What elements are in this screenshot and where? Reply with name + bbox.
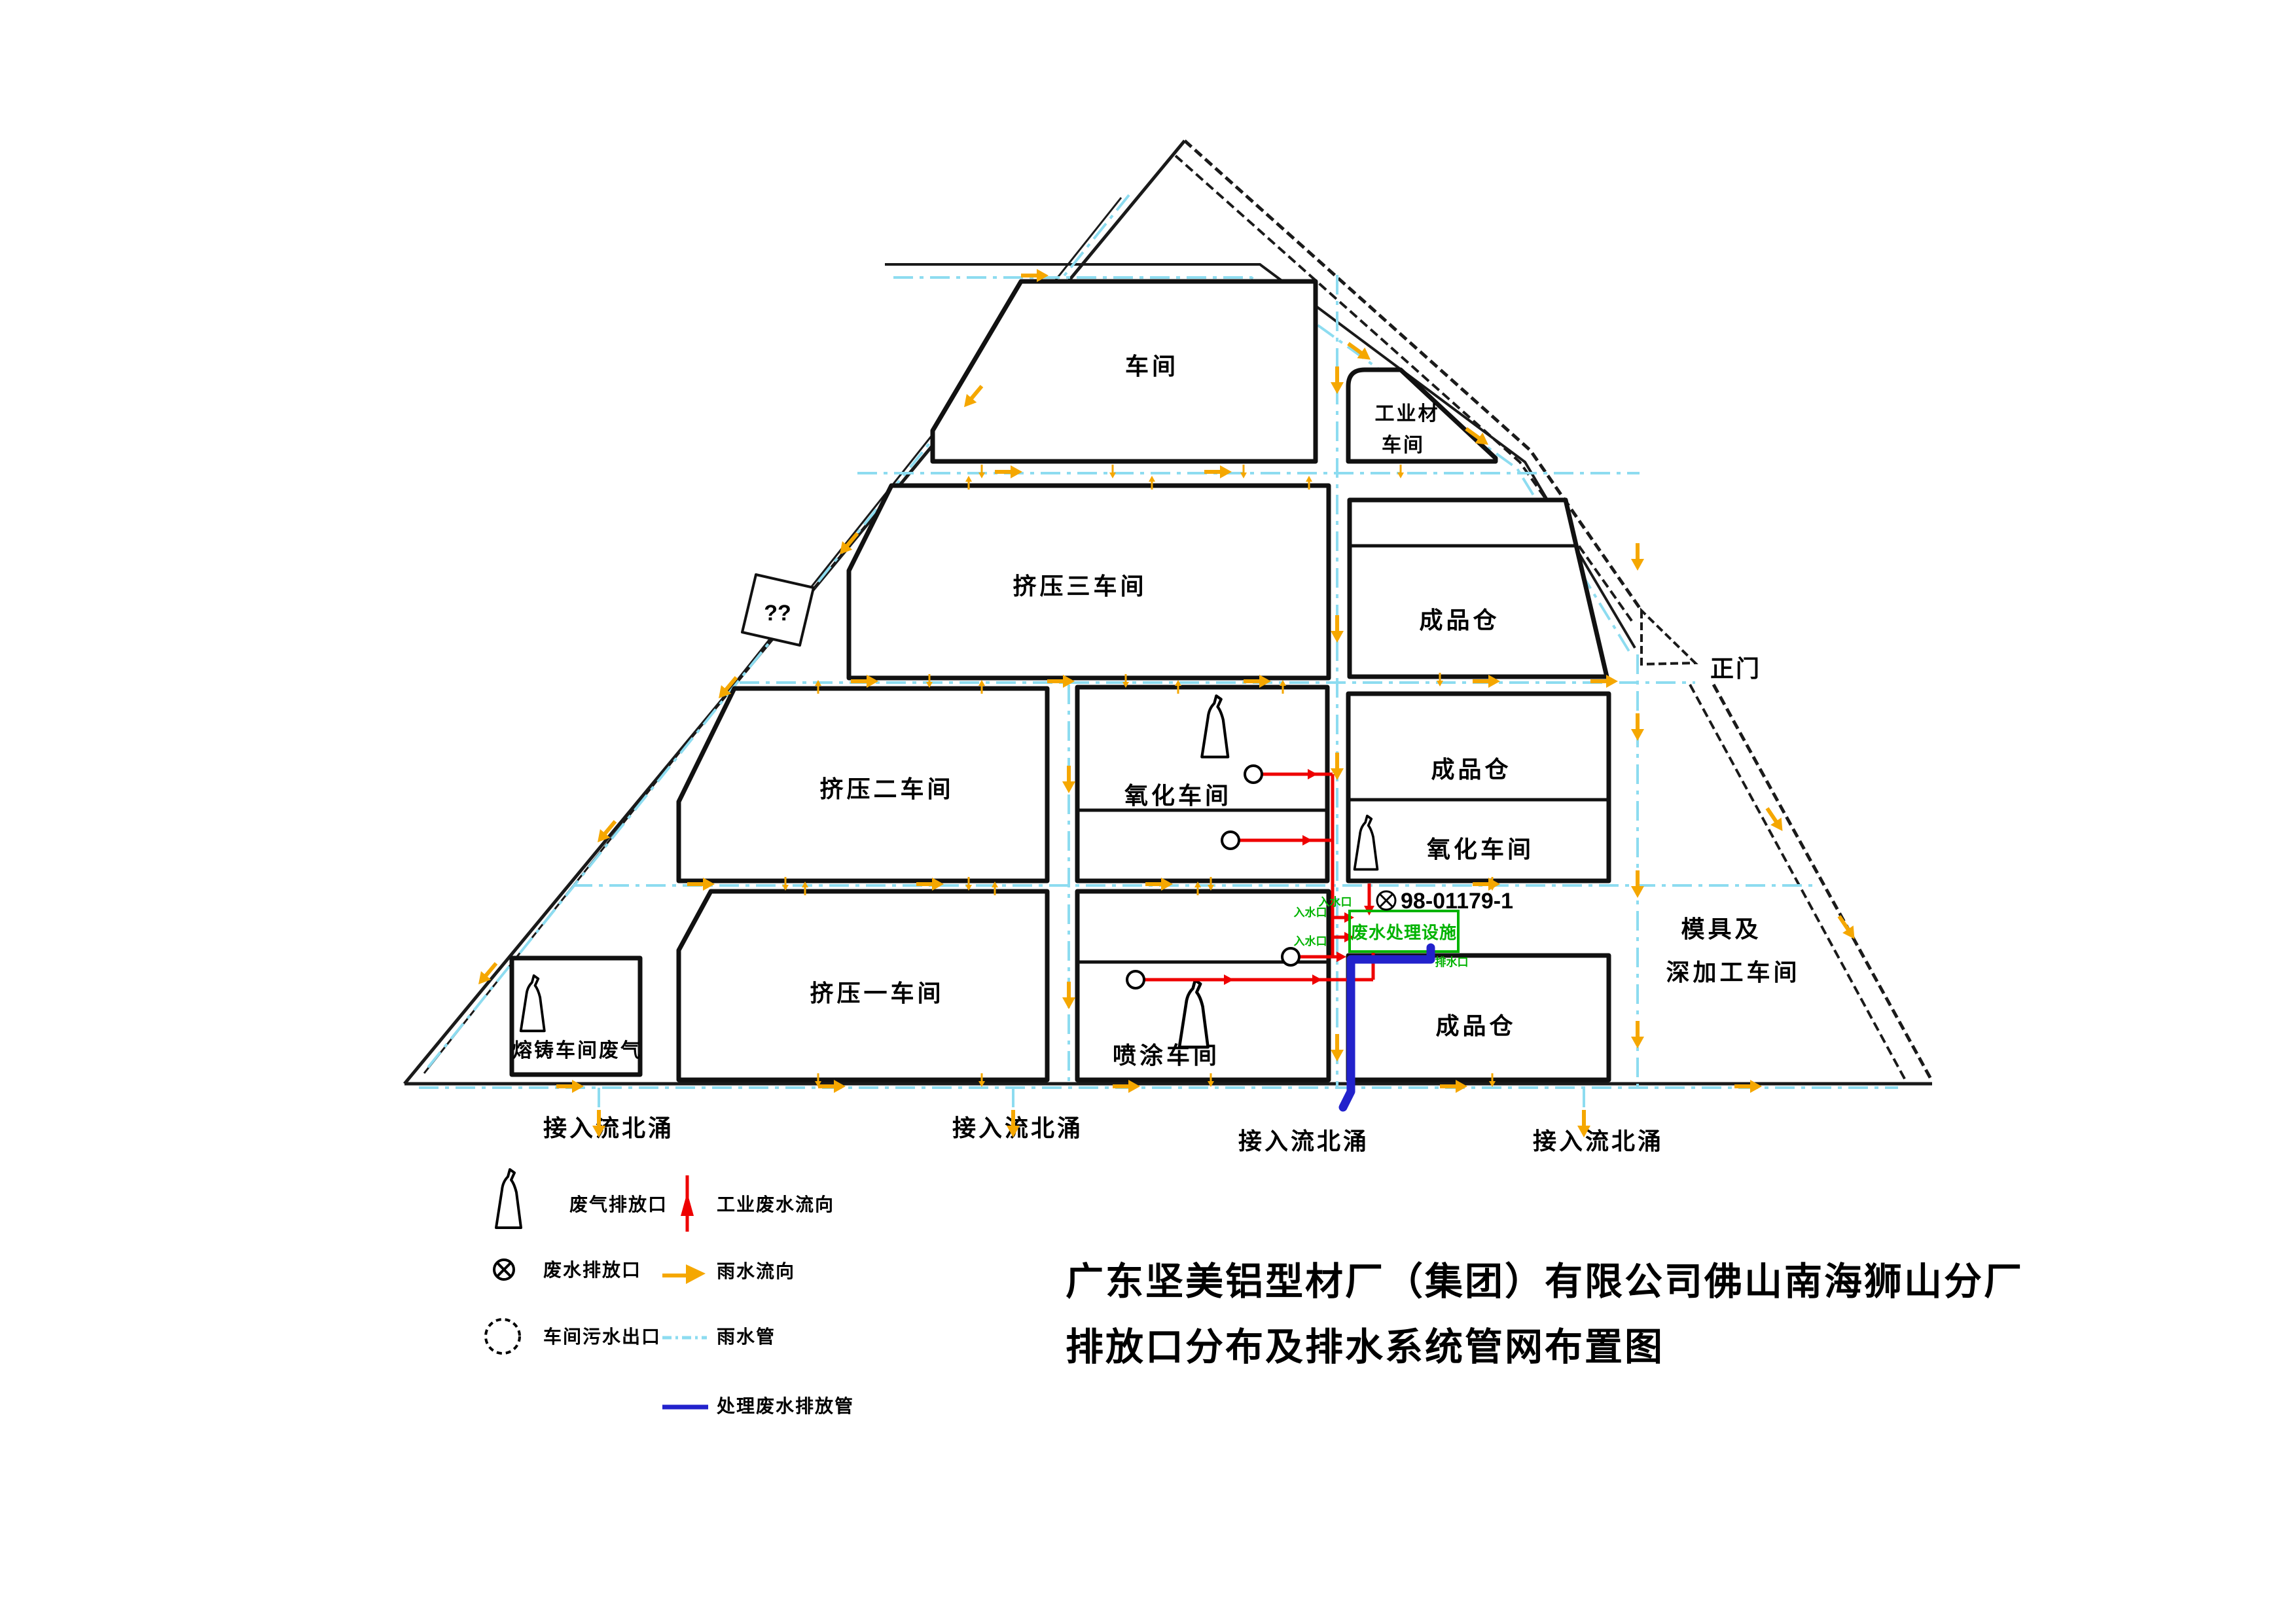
label-oxidation-1: 氧化车间 bbox=[1124, 782, 1232, 809]
boundary-lower-right-outer bbox=[1713, 685, 1932, 1081]
legend-treated-pipe-label: 处理废水排放管 bbox=[716, 1395, 854, 1416]
rain-flow-arrow-icon bbox=[1331, 366, 1344, 394]
treatment-inlet-label-2: 入水口 bbox=[1294, 906, 1327, 919]
wastewater-discharge-outlet-icon bbox=[1377, 891, 1395, 910]
legend-crossed-circle-icon bbox=[494, 1260, 514, 1279]
rain-flow-arrow-icon bbox=[1062, 766, 1075, 793]
rain-flow-arrow-icon bbox=[995, 465, 1022, 478]
outfall-labels: 接入流北涌 接入流北涌 接入流北涌 接入流北涌 bbox=[543, 1115, 1664, 1154]
label-finished-store-2: 成品仓 bbox=[1431, 756, 1511, 783]
legend-industrial-flow-label: 工业废水流向 bbox=[717, 1194, 834, 1215]
outfall-label-3: 接入流北涌 bbox=[1238, 1128, 1369, 1154]
sewage-outlet-circle-icon bbox=[1245, 766, 1262, 783]
rain-flow-arrow-icon bbox=[1331, 615, 1344, 643]
rain-flow-arrow-icon bbox=[1331, 1034, 1344, 1061]
rain-flow-arrow-icon bbox=[1204, 465, 1232, 478]
label-melting: 熔铸车间废气 bbox=[512, 1039, 642, 1061]
outfall-label-1: 接入流北涌 bbox=[543, 1115, 674, 1141]
rain-flow-arrow-icon bbox=[1631, 543, 1644, 571]
label-extrusion-3: 挤压三车间 bbox=[1013, 573, 1147, 599]
treatment-outlet-label: 排水口 bbox=[1435, 955, 1469, 969]
rain-flow-arrow-icon bbox=[1762, 804, 1788, 834]
legend-rain-flow-label: 雨水流向 bbox=[717, 1261, 795, 1281]
rain-flow-arrow-icon bbox=[1834, 912, 1860, 942]
label-unknown: ?? bbox=[764, 601, 791, 626]
label-mold-1: 模具及 bbox=[1681, 916, 1761, 942]
roof-drain-icon bbox=[1397, 465, 1404, 478]
label-extrusion-2: 挤压二车间 bbox=[819, 776, 954, 802]
sewage-outlet-circle-icon bbox=[1222, 832, 1239, 849]
rain-flow-arrow-icon bbox=[1734, 1080, 1762, 1093]
rain-flow-arrow-icon bbox=[1631, 1021, 1644, 1048]
label-gate: 正门 bbox=[1710, 655, 1761, 682]
legend-chimney-icon bbox=[496, 1169, 521, 1228]
label-workshop: 车间 bbox=[1125, 353, 1179, 380]
treatment-inlet-label-3: 入水口 bbox=[1294, 935, 1327, 948]
label-finished-store-3: 成品仓 bbox=[1435, 1012, 1516, 1039]
label-extrusion-1: 挤压一车间 bbox=[810, 980, 944, 1007]
title-line-2: 排放口分布及排水系统管网布置图 bbox=[1066, 1326, 1664, 1368]
sewage-outlet-circle-icon bbox=[1127, 971, 1144, 988]
legend: 废气排放口 废水排放口 车间污水出口 工业废水流向 雨水流向 雨水管 处理废水排… bbox=[486, 1169, 854, 1416]
site-plan-drawing: 车间 工业材 车间 挤压三车间 成品仓 挤压二车间 氧化车间 成品仓 氧化车间 … bbox=[0, 0, 2296, 1623]
sewage-outlet-circle-icon bbox=[1282, 948, 1299, 965]
label-oxidation-2: 氧化车间 bbox=[1427, 836, 1534, 863]
rain-flow-arrow-icon bbox=[1344, 338, 1374, 365]
label-mold-2: 深加工车间 bbox=[1666, 959, 1800, 986]
outfall-label-4: 接入流北涌 bbox=[1533, 1128, 1664, 1154]
gate-wedge bbox=[1641, 611, 1695, 664]
rain-flow-arrow-icon bbox=[1062, 982, 1075, 1009]
treatment-facility-label: 废水处理设施 bbox=[1351, 923, 1457, 942]
legend-dashed-circle-icon bbox=[486, 1319, 520, 1353]
rain-flow-arrow-icon bbox=[1631, 713, 1644, 741]
discharge-id-label: 98-01179-1 bbox=[1401, 889, 1513, 914]
legend-rain-pipe-label: 雨水管 bbox=[717, 1326, 776, 1347]
title-line-1: 广东坚美铝型材厂（集团）有限公司佛山南海狮山分厂 bbox=[1066, 1260, 2024, 1303]
label-industrial-material-1: 工业材 bbox=[1375, 403, 1440, 425]
legend-waste-water-label: 废水排放口 bbox=[543, 1259, 641, 1280]
red-arrow-icon bbox=[1336, 952, 1346, 962]
label-industrial-material-2: 车间 bbox=[1382, 434, 1425, 456]
legend-rain-flow-icon bbox=[662, 1264, 706, 1284]
drawing-title: 广东坚美铝型材厂（集团）有限公司佛山南海狮山分厂 排放口分布及排水系统管网布置图 bbox=[1066, 1260, 2024, 1368]
rain-flow-arrow-icon bbox=[556, 1080, 584, 1093]
roof-drain-icon bbox=[978, 465, 985, 478]
label-finished-store-1: 成品仓 bbox=[1419, 607, 1499, 633]
roof-drain-icon bbox=[1240, 465, 1247, 478]
building-finished-store-1 bbox=[1350, 500, 1607, 677]
legend-waste-gas-label: 废气排放口 bbox=[569, 1194, 668, 1215]
boundary-lower-right-inner bbox=[1690, 685, 1906, 1081]
legend-sewage-outlet-label: 车间污水出口 bbox=[543, 1326, 661, 1347]
roof-drain-icon bbox=[1109, 465, 1116, 478]
building-workshop bbox=[933, 281, 1316, 461]
legend-red-valve-icon bbox=[681, 1175, 694, 1232]
